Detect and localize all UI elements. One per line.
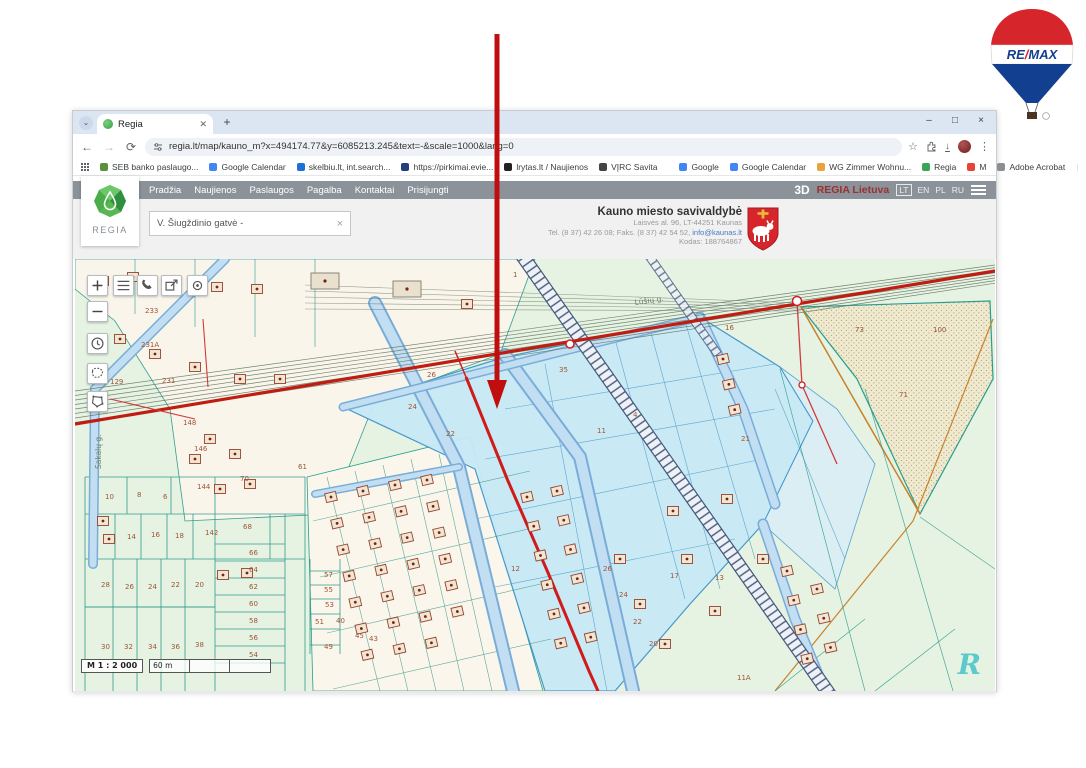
parcel-number: 61 — [298, 463, 307, 471]
bookmark-star-icon[interactable]: ☆ — [908, 140, 918, 153]
zoom-in-button[interactable] — [87, 275, 108, 296]
language-ru[interactable]: RU — [952, 185, 964, 195]
bookmark-item[interactable]: Google Calendar — [730, 162, 806, 172]
parcel-number: 36 — [171, 643, 180, 651]
page: { "browser": { "tab_title": "Regia", "ne… — [0, 0, 1086, 768]
remax-wordmark: RE/MAX — [1007, 47, 1059, 62]
bookmarks-right: GoogleGoogle CalendarWG Zimmer Wohnu...R… — [679, 162, 1065, 172]
parcel-number: 62 — [249, 583, 258, 591]
tab-search-chevron-icon[interactable]: ⌄ — [79, 116, 93, 130]
parcel-number: 129 — [110, 378, 123, 386]
scale-bar: M 1 : 2 000 60 m — [81, 659, 271, 673]
history-button[interactable] — [87, 333, 108, 354]
apps-grid-icon[interactable] — [81, 163, 89, 171]
profile-avatar[interactable] — [958, 140, 971, 153]
view-3d-button[interactable]: 3D — [794, 183, 809, 197]
parcel-number: 66 — [249, 549, 258, 557]
parcel-number: 146 — [194, 445, 208, 453]
nav-item-paslaugos[interactable]: Paslaugos — [249, 185, 293, 196]
language-lt[interactable]: LT — [896, 184, 911, 196]
bookmark-item[interactable]: Adobe Acrobat — [997, 162, 1065, 172]
tab-close-icon[interactable]: ✕ — [199, 119, 207, 130]
nav-item-pradžia[interactable]: Pradžia — [149, 185, 181, 196]
bookmark-item[interactable]: M — [967, 162, 986, 172]
parcel-number: 26 — [427, 371, 436, 379]
share-icon — [162, 275, 181, 296]
street-label: Sakalų g. — [94, 434, 103, 469]
forward-icon[interactable]: → — [101, 140, 117, 154]
bookmark-item[interactable]: Regia — [922, 162, 956, 172]
parcel-number: 40 — [336, 617, 345, 625]
municipality-name: Kauno miesto savivaldybė — [548, 206, 742, 218]
bookmark-favicon-icon — [100, 163, 108, 171]
menu-kebab-icon[interactable]: ⋮ — [979, 140, 990, 153]
map-graphic: 233231A231129108614161814268666462605856… — [75, 259, 995, 691]
parcel-number: 13 — [715, 574, 724, 582]
language-pl[interactable]: PL — [935, 185, 945, 195]
parcel-number: 28 — [101, 581, 110, 589]
bookmark-favicon-icon — [922, 163, 930, 171]
select-lasso-button[interactable] — [87, 363, 108, 384]
identify-button[interactable] — [137, 275, 158, 296]
parcel-number: 231A — [141, 341, 159, 349]
tab-title: Regia — [118, 119, 194, 130]
parcel-number: 14 — [127, 533, 136, 541]
language-en[interactable]: EN — [918, 185, 930, 195]
site-settings-icon[interactable] — [153, 142, 163, 152]
parcel-number: 30 — [101, 643, 110, 651]
regia-logo[interactable]: REGIA — [81, 176, 139, 246]
bookmark-favicon-icon — [297, 163, 305, 171]
parcel-number: 11A — [737, 674, 751, 682]
parcel-number: 16 — [151, 531, 160, 539]
regia-logo-text: REGIA — [81, 225, 139, 235]
parcel-number: 60 — [249, 600, 258, 608]
bookmarks-left: SEB banko paslaugo...Google Calendarskel… — [100, 162, 657, 172]
parcel-number: 22 — [633, 618, 642, 626]
parcel-number: 58 — [249, 617, 258, 625]
regia-watermark: R — [958, 648, 981, 681]
bookmark-favicon-icon — [679, 163, 687, 171]
downloads-icon[interactable]: ↓ — [945, 142, 950, 152]
parcel-number: 148 — [183, 419, 196, 427]
parcel-number: 100 — [933, 326, 946, 334]
legend-icon — [114, 275, 133, 296]
minimize-button[interactable]: – — [916, 111, 942, 133]
annotation-arrow — [470, 28, 526, 418]
bookmark-item[interactable]: Google — [679, 162, 718, 172]
parcel-number: 71 — [899, 391, 908, 399]
parcel-number: 16 — [725, 324, 734, 332]
parcel-number: 43 — [369, 635, 378, 643]
site-brand: REGIA Lietuva — [817, 184, 890, 196]
extensions-icon[interactable] — [926, 141, 937, 152]
bookmark-favicon-icon — [599, 163, 607, 171]
parcel-number: 18 — [175, 532, 184, 540]
search-input[interactable]: V. Šiugždinio gatvė - — [157, 218, 337, 229]
municipality-contacts: Tel. (8 37) 42 26 08; Faks. (8 37) 42 54… — [548, 228, 742, 238]
map-canvas[interactable]: 233231A231129108614161814268666462605856… — [75, 259, 995, 691]
parcel-number: 26 — [125, 583, 134, 591]
bookmark-favicon-icon — [817, 163, 825, 171]
scale-distance: 60 m — [150, 660, 190, 672]
bookmark-favicon-icon — [967, 163, 975, 171]
parcel-number: 73 — [855, 326, 864, 334]
locate-icon — [188, 275, 207, 296]
parcel-number: 32 — [124, 643, 133, 651]
bookmark-item[interactable]: SEB banko paslaugo... — [100, 162, 198, 172]
parcel-number: 233 — [145, 307, 158, 315]
bookmark-item[interactable]: skelbiu.lt, int.search... — [297, 162, 391, 172]
municipality-code: Kodas: 188764867 — [548, 237, 742, 247]
new-tab-button[interactable]: + — [219, 115, 235, 131]
nav-item-prisijungti[interactable]: Prisijungti — [407, 185, 448, 196]
zoom-out-icon — [88, 301, 107, 322]
bookmark-item[interactable]: Google Calendar — [209, 162, 285, 172]
browser-tab[interactable]: Regia ✕ — [97, 114, 213, 134]
parcel-number: 56 — [249, 634, 258, 642]
parcel-number: 10 — [105, 493, 114, 501]
parcel-number: 142 — [205, 529, 218, 537]
bookmark-favicon-icon — [730, 163, 738, 171]
parcel-number: 68 — [243, 523, 252, 531]
site-header: V. Šiugždinio gatvė - × Kauno miesto sav… — [73, 199, 996, 259]
parcel-number: 64 — [249, 566, 258, 574]
parcel-number: 17 — [670, 572, 679, 580]
parcel-number: 55 — [324, 586, 333, 594]
parcel-number: 22 — [171, 581, 180, 589]
search-clear-icon[interactable]: × — [337, 218, 343, 230]
scale-label: M 1 : 2 000 — [81, 659, 143, 673]
parcel-number: 45 — [355, 632, 364, 640]
parcel-number: 21 — [741, 435, 750, 443]
parcel-number: 4 — [633, 411, 638, 419]
bookmark-item[interactable]: VĮRC Savita — [599, 162, 657, 172]
legend-button[interactable] — [113, 275, 134, 296]
hamburger-menu-icon[interactable] — [971, 183, 986, 197]
parcel-number: 57 — [324, 571, 333, 579]
nav-item-kontaktai[interactable]: Kontaktai — [355, 185, 395, 196]
municipality-address: Laisvės al. 96, LT-44251 Kaunas — [548, 218, 742, 228]
regia-favicon-icon — [103, 119, 113, 129]
parcel-number: 53 — [325, 601, 334, 609]
toolbar-right: ☆ ↓ ⋮ — [908, 140, 990, 153]
bookmark-favicon-icon — [209, 163, 217, 171]
kaunas-coat-of-arms — [746, 206, 780, 252]
bookmark-item[interactable]: WG Zimmer Wohnu... — [817, 162, 911, 172]
parcel-number: 34 — [148, 643, 157, 651]
municipality-email-link[interactable]: info@kaunas.lt — [692, 228, 742, 237]
site-nav: PradžiaNaujienosPaslaugosPagalbaKontakta… — [73, 181, 996, 199]
history-icon — [88, 333, 107, 354]
tab-strip: ⌄ Regia ✕ + –□× — [73, 111, 996, 134]
select-polygon-icon — [88, 391, 107, 412]
municipality-info: Kauno miesto savivaldybė Laisvės al. 96,… — [548, 206, 742, 247]
bookmark-favicon-icon — [401, 163, 409, 171]
parcel-number: 54 — [249, 651, 258, 659]
parcel-number: 26 — [603, 565, 612, 573]
browser-window: ⌄ Regia ✕ + –□× ← → ⟳ regia.lt/map/kauno… — [72, 110, 997, 692]
parcel-number: 24 — [148, 583, 157, 591]
nav-item-pagalba[interactable]: Pagalba — [307, 185, 342, 196]
regia-site: PradžiaNaujienosPaslaugosPagalbaKontakta… — [73, 176, 996, 693]
remax-balloon-logo: RE/MAX — [986, 6, 1078, 126]
identify-icon — [138, 275, 157, 296]
parcel-number: 38 — [195, 641, 204, 649]
share-button[interactable] — [161, 275, 182, 296]
window-controls: –□× — [916, 111, 994, 133]
parcel-number: 22 — [446, 430, 455, 438]
parcel-number: 6 — [163, 493, 168, 501]
parcel-number: 20 — [195, 581, 204, 589]
parcel-number: 144 — [197, 483, 211, 491]
parcel-number: 51 — [315, 618, 324, 626]
locate-button[interactable] — [187, 275, 208, 296]
bookmarks-bar: SEB banko paslaugo...Google Calendarskel… — [73, 159, 996, 176]
zoom-in-icon — [88, 275, 107, 296]
parcel-number: 70 — [240, 475, 249, 483]
parcel-number: 49 — [324, 643, 333, 651]
parcel-number: 8 — [137, 491, 141, 499]
select-lasso-icon — [88, 363, 107, 384]
parcel-number: 231 — [162, 377, 175, 385]
browser-toolbar: ← → ⟳ regia.lt/map/kauno_m?x=494174.77&y… — [73, 134, 996, 159]
maximize-button[interactable]: □ — [942, 111, 968, 133]
parcel-number: 20 — [649, 640, 658, 648]
bookmark-favicon-icon — [997, 163, 1005, 171]
parcel-number: 11 — [597, 427, 606, 435]
zoom-out-button[interactable] — [87, 301, 108, 322]
parcel-number: 24 — [408, 403, 417, 411]
back-icon[interactable]: ← — [79, 140, 95, 154]
select-polygon-button[interactable] — [87, 391, 108, 412]
regia-gem-icon — [93, 184, 127, 220]
parcel-number: 24 — [619, 591, 628, 599]
nav-item-naujienos[interactable]: Naujienos — [194, 185, 236, 196]
search-box[interactable]: V. Šiugždinio gatvė - × — [149, 211, 351, 236]
parcel-number: 12 — [511, 565, 520, 573]
reload-icon[interactable]: ⟳ — [123, 140, 139, 154]
url-text[interactable]: regia.lt/map/kauno_m?x=494174.77&y=60852… — [169, 141, 514, 152]
parcel-number: 35 — [559, 366, 568, 374]
